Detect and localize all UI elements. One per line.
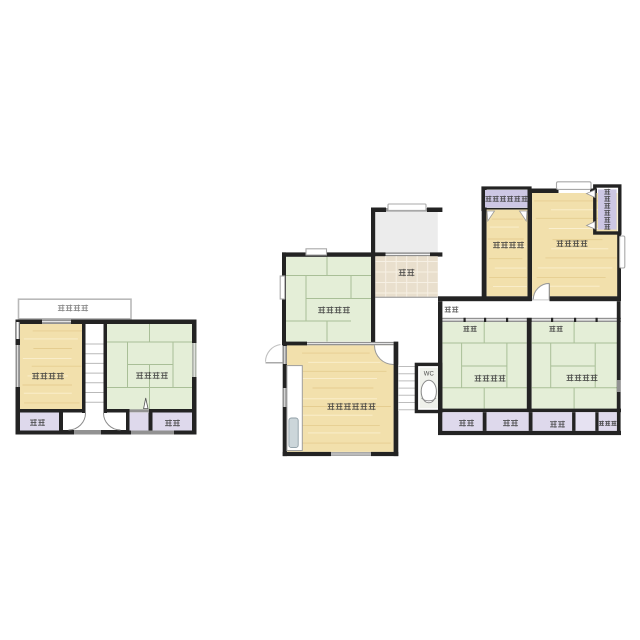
svg-text:WC: WC xyxy=(424,371,435,377)
